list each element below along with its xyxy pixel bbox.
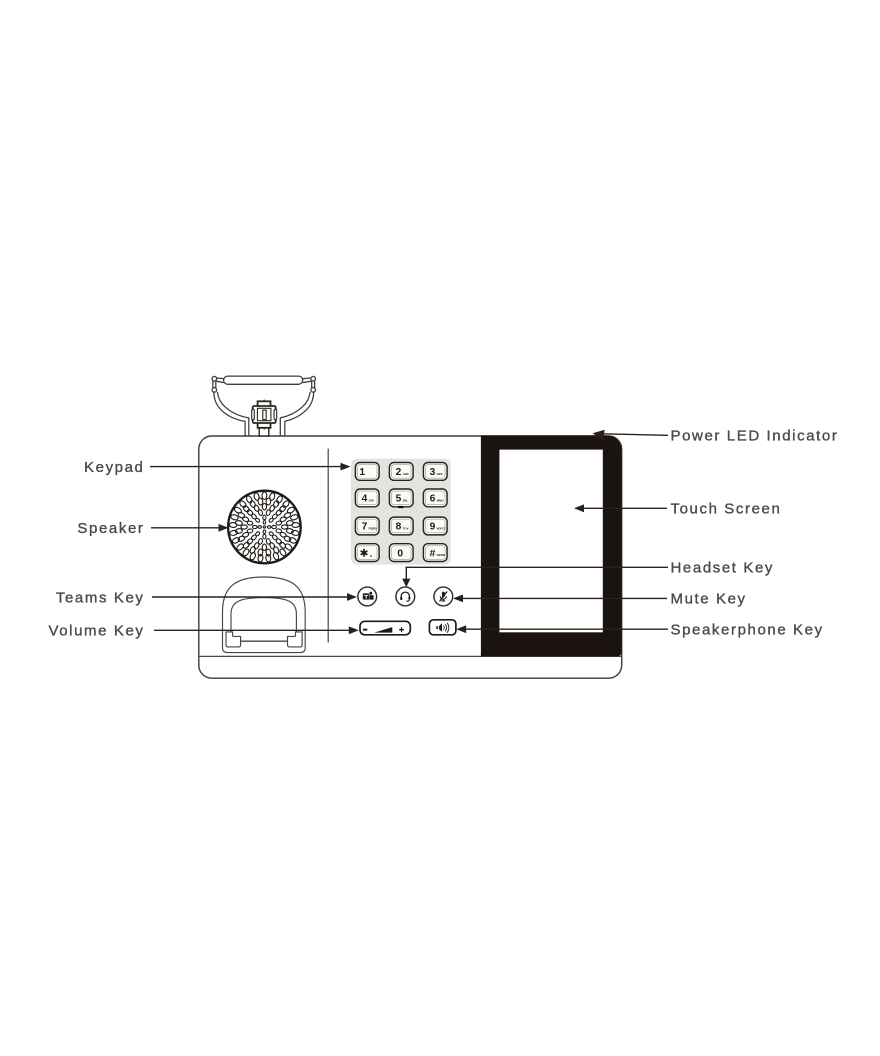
- svg-text:PQRS: PQRS: [369, 527, 378, 531]
- svg-text:WXYZ: WXYZ: [437, 527, 446, 531]
- svg-text:6: 6: [430, 494, 436, 505]
- svg-text:Volume Key: Volume Key: [48, 623, 144, 640]
- svg-text:Speakerphone Key: Speakerphone Key: [671, 622, 824, 639]
- svg-text:MNO: MNO: [437, 498, 445, 502]
- svg-text:Speaker: Speaker: [77, 520, 144, 537]
- svg-text:0: 0: [397, 548, 403, 559]
- svg-text:1: 1: [359, 467, 365, 478]
- svg-text:GHI: GHI: [369, 498, 375, 502]
- svg-text:9: 9: [430, 522, 436, 533]
- svg-text:5: 5: [396, 494, 402, 505]
- svg-text:Power LED Indicator: Power LED Indicator: [671, 427, 839, 444]
- svg-text:Teams Key: Teams Key: [56, 589, 145, 606]
- svg-text:#: #: [430, 548, 436, 559]
- svg-text:2: 2: [396, 467, 402, 478]
- svg-text:Headset Key: Headset Key: [671, 560, 774, 577]
- svg-text:Keypad: Keypad: [84, 459, 144, 476]
- svg-text:DEF: DEF: [437, 472, 443, 476]
- svg-text:ABC: ABC: [403, 472, 410, 476]
- svg-text:8: 8: [396, 522, 402, 533]
- svg-text:7: 7: [362, 522, 368, 533]
- svg-text:SEND: SEND: [437, 553, 446, 557]
- svg-text:TUV: TUV: [403, 527, 409, 531]
- svg-text:JKL: JKL: [403, 498, 409, 502]
- svg-text:4: 4: [362, 494, 368, 505]
- svg-text:Touch Screen: Touch Screen: [671, 501, 782, 518]
- svg-text:Mute Key: Mute Key: [671, 591, 747, 608]
- svg-text:3: 3: [430, 467, 436, 478]
